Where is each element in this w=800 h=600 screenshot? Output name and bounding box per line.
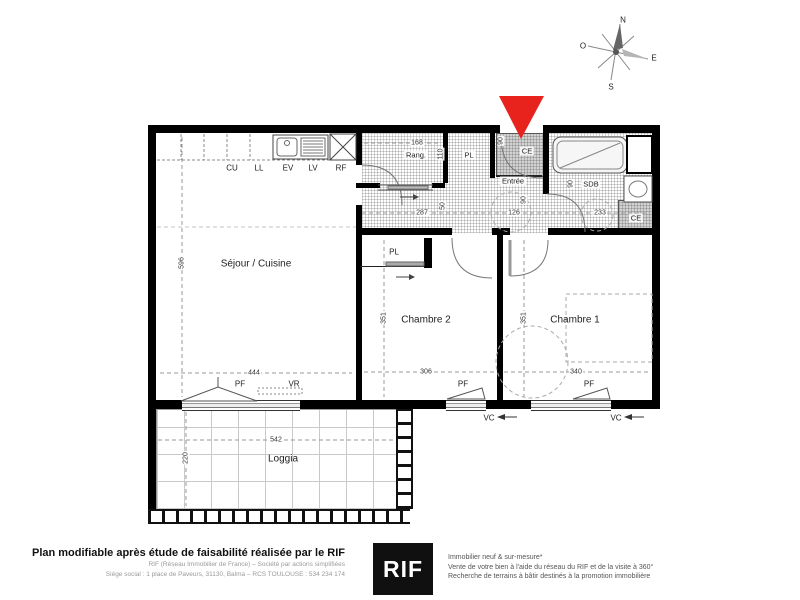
roller-shutter-box: [258, 388, 302, 394]
room-label-pl-entry: PL: [462, 151, 475, 160]
wall-rang-bottom-right: [432, 183, 445, 188]
footer-right-block: Immobilier neuf & sur-mesure* Vente de v…: [448, 553, 653, 582]
window-chambre1: [531, 400, 611, 411]
wall-bottom-b: [300, 400, 446, 409]
door-chambre2: [452, 238, 492, 278]
room-label-chambre2: Chambre 2: [401, 315, 450, 326]
sink-unit: [273, 135, 328, 159]
wall-entree-sdb: [543, 133, 549, 194]
dim-chambre1-width: 340: [569, 369, 583, 376]
footer-service-2: Vente de votre bien à l'aide du réseau d…: [448, 563, 653, 573]
bed-outline: [566, 294, 652, 362]
wall-pl-ce: [490, 133, 495, 178]
room-label-sdb: SDB: [581, 180, 600, 189]
window-label-pf-sejour: PF: [235, 380, 245, 389]
dim-loggia-height: 220: [183, 451, 190, 465]
window-opening-triangles: [181, 377, 610, 401]
floor-plan-page: N S O E Séjour / Cuisine Chambre 2 Chamb…: [0, 0, 800, 600]
dim-door-entree: 90: [498, 136, 505, 146]
room-label-pl-chambre2: PL: [389, 248, 399, 257]
dim-rang-depth: 110: [438, 147, 445, 160]
dishwasher-icon: [301, 138, 325, 156]
dim-loggia-width: 542: [269, 437, 283, 444]
window-label-pf-chambre1: PF: [584, 380, 594, 389]
room-label-chambre1: Chambre 1: [550, 315, 599, 326]
footer-service-1: Immobilier neuf & sur-mesure*: [448, 553, 653, 563]
dim-door-sdb: 90: [568, 179, 575, 189]
wall-rang-bottom-left: [356, 183, 380, 188]
dim-rang-width: 168: [410, 140, 424, 147]
loggia-railing-right: [396, 409, 413, 509]
footer-company-line: RIF (Réseau Immobilier de France) – Soci…: [32, 561, 345, 569]
dim-door-b: 90: [521, 195, 528, 205]
wall-pl-chambre2-front: [360, 266, 424, 267]
rif-logo: RIF: [373, 543, 433, 595]
wall-corridor-b: [492, 228, 510, 235]
dim-hall-a: 287: [415, 210, 429, 217]
kitchen-label-ll: LL: [255, 164, 264, 173]
window-label-pf-chambre2: PF: [458, 380, 468, 389]
wall-bottom-c: [486, 400, 531, 409]
dim-sejour-height: 596: [179, 256, 186, 270]
footer-left-block: Plan modifiable après étude de faisabili…: [32, 547, 345, 579]
footer-service-3: Recherche de terrains à bâtir destinés à…: [448, 572, 653, 582]
wall-chambre1-chambre2: [497, 235, 503, 400]
compass-south-label: S: [608, 83, 613, 92]
dim-chambre2-height: 351: [381, 311, 388, 325]
window-chambre2: [446, 400, 486, 411]
dim-chambre2-width: 306: [419, 369, 433, 376]
door-chambre1: [510, 240, 548, 276]
window-label-vc-chambre2: VC: [483, 414, 494, 423]
kitchen-label-rf: RF: [336, 164, 347, 173]
vc-arrows: [497, 414, 644, 420]
compass-east-label: E: [651, 54, 656, 63]
kitchen-counter: [157, 134, 356, 160]
dim-chambre1-height: 351: [521, 311, 528, 325]
room-label-ce-sdb: CE: [629, 214, 643, 223]
room-label-sejour: Séjour / Cuisine: [221, 259, 292, 270]
room-label-loggia: Loggia: [268, 454, 298, 465]
wall-corridor-a: [356, 228, 452, 235]
wall-bottom-d: [611, 400, 660, 409]
wall-sejour-entry-upper: [356, 133, 362, 165]
compass-north-label: N: [620, 16, 626, 25]
fridge-icon: [330, 134, 356, 160]
loggia-railing-bottom: [148, 509, 410, 524]
window-sejour: [182, 400, 300, 411]
window-label-vr: VR: [288, 380, 299, 389]
compass-icon: [588, 24, 648, 80]
wall-right: [652, 125, 660, 408]
dim-door-a: 50: [440, 201, 447, 211]
window-label-vc-chambre1: VC: [610, 414, 621, 423]
room-label-entree: Entrée: [500, 177, 526, 186]
kitchen-label-cu: CU: [226, 164, 238, 173]
dim-sejour-width: 444: [247, 370, 261, 377]
compass-west-label: O: [580, 42, 586, 51]
wall-left: [148, 125, 156, 408]
wall-top-right: [543, 125, 660, 133]
wall-loggia-left: [148, 408, 156, 509]
dim-sdb-width: 233: [593, 210, 607, 217]
footer-disclaimer: Plan modifiable après étude de faisabili…: [32, 547, 345, 559]
room-label-rang: Rang.: [404, 151, 428, 160]
footer-address-line: Siège social : 1 place de Paveurs, 31130…: [32, 571, 345, 579]
room-label-ce-entry: CE: [520, 147, 534, 156]
wall-top-left: [148, 125, 500, 133]
kitchen-label-lv: LV: [308, 164, 317, 173]
dim-hall-b: 126: [507, 210, 521, 217]
wall-corridor-c: [548, 228, 652, 235]
kitchen-label-ev: EV: [283, 164, 294, 173]
wall-pl-chambre2-stub: [424, 238, 432, 268]
